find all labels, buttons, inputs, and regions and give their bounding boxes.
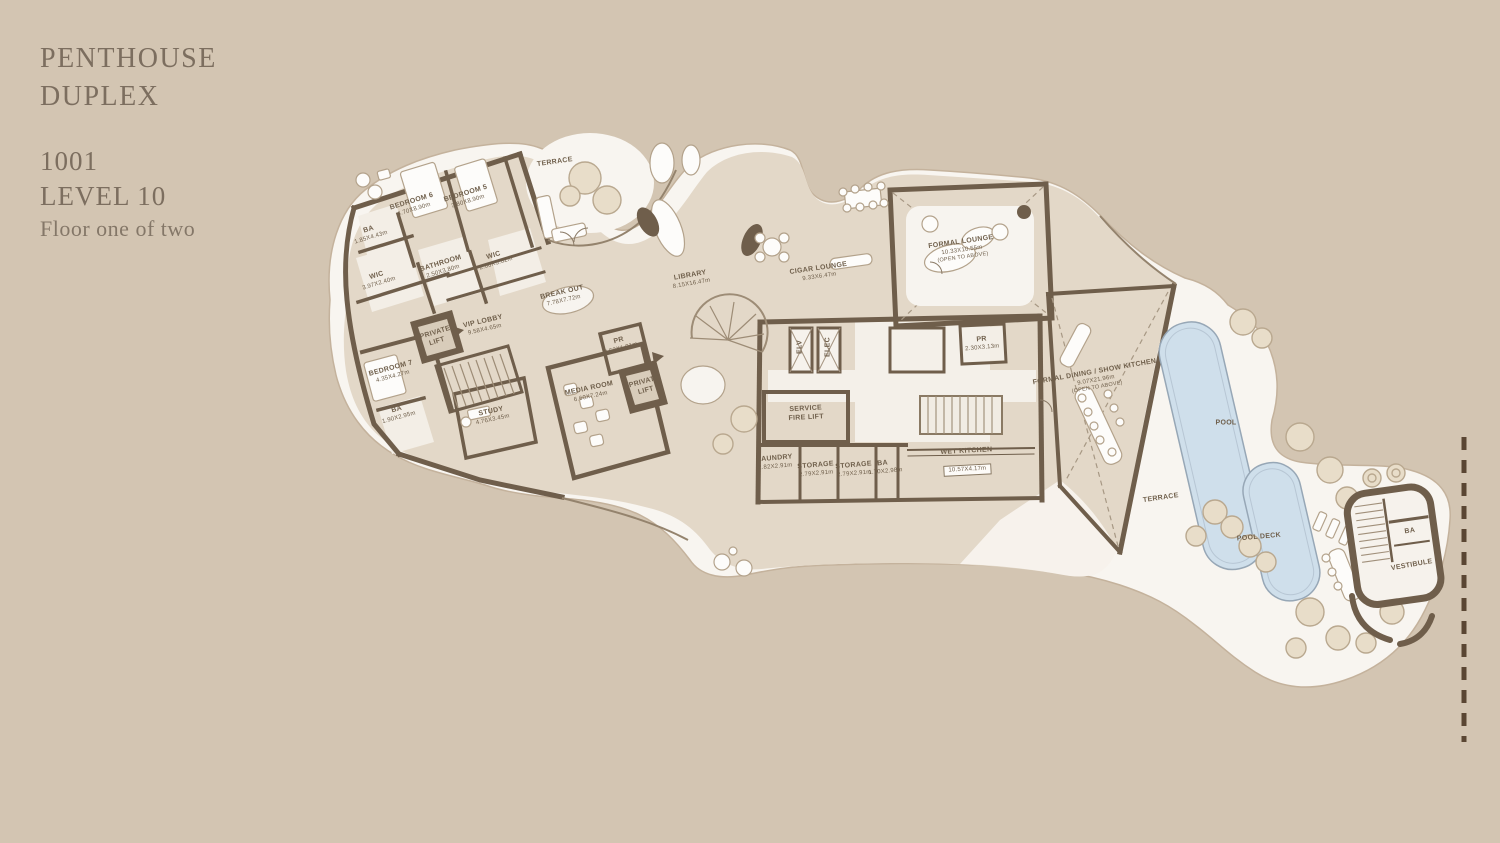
floor-note: Floor one of two bbox=[40, 214, 217, 244]
page-title-line1: PENTHOUSE bbox=[40, 40, 217, 78]
vestibule-block bbox=[1345, 484, 1444, 607]
unit-number: 1001 bbox=[40, 144, 217, 179]
floor-plan-page: PENTHOUSE DUPLEX 1001 LEVEL 10 Floor one… bbox=[0, 0, 1500, 843]
level-label: LEVEL 10 bbox=[40, 179, 217, 214]
floor-plan bbox=[0, 0, 1500, 843]
page-title-line2: DUPLEX bbox=[40, 78, 217, 116]
staircase-wet-kitchen bbox=[920, 396, 1002, 434]
title-block: PENTHOUSE DUPLEX 1001 LEVEL 10 Floor one… bbox=[40, 40, 217, 244]
